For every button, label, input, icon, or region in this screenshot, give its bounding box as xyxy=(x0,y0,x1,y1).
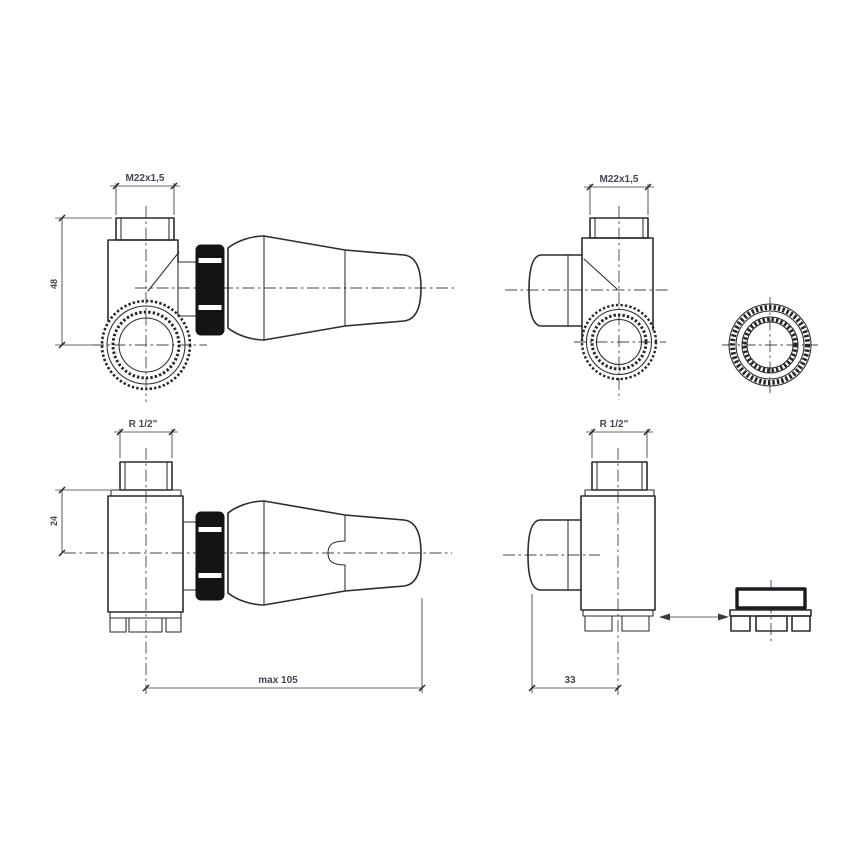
tailpiece-segment xyxy=(622,616,649,631)
dimension-thread-top-left: M22x1,5 xyxy=(110,173,180,215)
offset-dimension-label: 33 xyxy=(564,675,576,686)
gland-nut-top-left xyxy=(196,245,224,335)
tailpiece-segment xyxy=(129,618,162,632)
nut-slot xyxy=(199,258,222,263)
dimension-thread-bottom-right: R 1/2" xyxy=(586,419,653,458)
arrowhead-right xyxy=(718,614,729,621)
length-dimension-label: max 105 xyxy=(258,675,298,686)
height-dimension-label: 48 xyxy=(49,279,59,289)
cap-flat-segment xyxy=(731,616,750,631)
nut-slot xyxy=(199,527,222,532)
body-neck xyxy=(183,522,196,590)
assembly-direction-arrow xyxy=(659,614,729,621)
view-top-left-corner-valve: M22x1,5 48 xyxy=(49,173,455,402)
dimension-height-top-left: 48 xyxy=(49,215,112,348)
body-outline xyxy=(108,240,178,321)
nut-slot xyxy=(199,573,222,578)
dimension-length-bottom-left: max 105 xyxy=(143,598,425,693)
arrowhead-left xyxy=(659,614,670,621)
pipe-stub-outline xyxy=(529,255,582,326)
thread-dimension-label: M22x1,5 xyxy=(126,173,165,184)
union-ring-front-view xyxy=(722,297,818,393)
pipe-stub-top-right xyxy=(529,255,582,326)
dimension-height-bottom-left: 24 xyxy=(49,487,110,556)
body-neck xyxy=(178,262,196,316)
technical-drawing-canvas: M22x1,5 48 xyxy=(0,0,868,868)
thread-outline xyxy=(592,462,647,490)
drawing-page: M22x1,5 48 xyxy=(0,0,868,868)
threaded-connection-top-left xyxy=(116,218,174,240)
body-chamfer-line xyxy=(148,252,179,291)
tailpiece-segment xyxy=(585,616,612,631)
threaded-connection-bottom-right xyxy=(585,462,654,496)
body-chamfer-line xyxy=(584,259,617,289)
thread-dimension-label: R 1/2" xyxy=(600,419,629,430)
gland-nut xyxy=(196,512,224,600)
gland-nut-bottom-left xyxy=(196,512,224,600)
tailpiece-band xyxy=(110,612,181,618)
cap-top-outline xyxy=(737,589,805,608)
view-top-right-corner-valve-side: M22x1,5 xyxy=(505,174,670,400)
thread-dimension-label: M22x1,5 xyxy=(600,174,639,185)
nut-slot xyxy=(199,305,222,310)
tailpiece-segment xyxy=(166,618,181,632)
view-bottom-right-straight-valve-side: R 1/2" 33 xyxy=(503,419,729,695)
thread-collar xyxy=(585,490,654,496)
cap-adapter-side-view xyxy=(730,580,811,642)
height-dimension-label: 24 xyxy=(49,516,59,526)
body-outline xyxy=(108,496,183,612)
valve-body-bottom-left xyxy=(108,496,196,632)
thread-outline xyxy=(116,218,174,240)
tailpiece-segment xyxy=(110,618,126,632)
dimension-offset-bottom-right: 33 xyxy=(529,594,621,693)
cap-band xyxy=(730,610,811,616)
cap-flat-segment xyxy=(756,616,787,631)
valve-body-top-right xyxy=(582,238,653,340)
thread-dimension-label: R 1/2" xyxy=(129,419,158,430)
cap-flat-segment xyxy=(792,616,810,631)
view-bottom-left-straight-valve: R 1/2" 24 xyxy=(49,419,452,694)
